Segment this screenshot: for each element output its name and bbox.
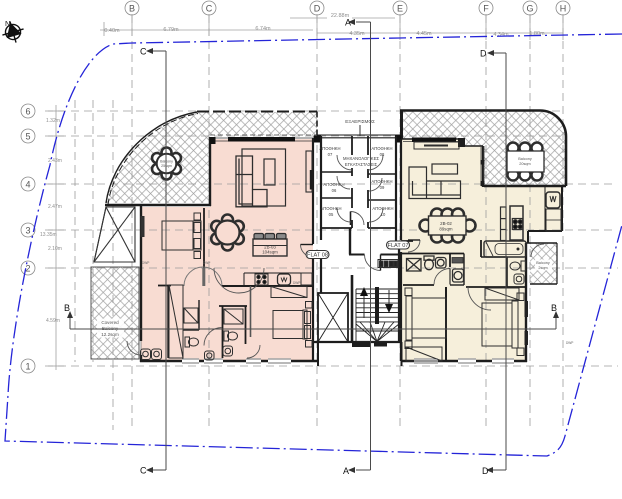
- svg-text:4.59m: 4.59m: [46, 318, 60, 324]
- svg-text:F: F: [483, 4, 489, 14]
- svg-text:H: H: [560, 4, 567, 14]
- svg-text:13.35m: 13.35m: [40, 232, 57, 238]
- svg-text:A: A: [343, 466, 349, 476]
- svg-text:FLAT 08: FLAT 08: [307, 253, 328, 259]
- svg-text:4.35m: 4.35m: [349, 31, 365, 37]
- svg-text:2.10m: 2.10m: [48, 246, 62, 252]
- svg-text:E: E: [397, 4, 403, 14]
- svg-text:ΑΠΟΘΗΚΗ: ΑΠΟΘΗΚΗ: [323, 182, 344, 187]
- svg-text:DWP: DWP: [566, 341, 573, 345]
- svg-text:4.45m: 4.45m: [416, 31, 432, 37]
- svg-text:B: B: [551, 303, 557, 313]
- svg-text:2.47m: 2.47m: [48, 204, 62, 210]
- svg-text:6.79m: 6.79m: [163, 27, 179, 33]
- svg-text:Balcony: Balcony: [518, 157, 532, 161]
- svg-text:06: 06: [332, 188, 337, 193]
- svg-text:C: C: [206, 4, 213, 14]
- svg-text:ΑΠΟΘΗΚΗ: ΑΠΟΘΗΚΗ: [371, 179, 392, 184]
- svg-text:B: B: [64, 303, 70, 313]
- svg-text:6.74m: 6.74m: [255, 26, 271, 32]
- svg-text:ΑΠΟΘΗΚΗ: ΑΠΟΘΗΚΗ: [320, 206, 341, 211]
- svg-text:07: 07: [328, 152, 333, 157]
- svg-text:DWP: DWP: [293, 281, 300, 285]
- svg-text:104sqm: 104sqm: [262, 250, 278, 255]
- svg-text:Balcony: Balcony: [160, 160, 173, 164]
- svg-text:D: D: [482, 466, 489, 476]
- svg-text:05: 05: [329, 212, 334, 217]
- svg-text:ΑΠΟΘΗΚΗ: ΑΠΟΘΗΚΗ: [371, 146, 392, 151]
- svg-text:0.40m: 0.40m: [104, 28, 120, 34]
- svg-text:12.2sqm: 12.2sqm: [101, 332, 119, 337]
- svg-text:N: N: [5, 19, 10, 28]
- svg-text:4: 4: [25, 180, 30, 190]
- svg-text:G: G: [526, 4, 533, 14]
- svg-text:5: 5: [25, 132, 30, 142]
- svg-text:A: A: [345, 18, 351, 28]
- svg-text:09: 09: [380, 185, 385, 190]
- svg-text:D: D: [480, 49, 487, 59]
- svg-text:4.34m: 4.34m: [493, 32, 509, 38]
- svg-text:89sqm: 89sqm: [439, 227, 453, 232]
- svg-text:ΑΠΟΘΗΚΗ: ΑΠΟΘΗΚΗ: [372, 206, 393, 211]
- svg-text:FLAT 07: FLAT 07: [388, 243, 409, 249]
- svg-text:Balcony: Balcony: [536, 261, 550, 265]
- svg-text:DWP: DWP: [142, 261, 149, 265]
- svg-text:D: D: [314, 4, 321, 14]
- svg-text:1: 1: [25, 362, 30, 372]
- svg-text:3: 3: [25, 226, 30, 236]
- svg-text:ΑΠΟΘΗΚΗ: ΑΠΟΘΗΚΗ: [319, 146, 340, 151]
- svg-text:C: C: [140, 47, 147, 57]
- svg-text:2sqm: 2sqm: [538, 266, 547, 270]
- svg-text:10: 10: [381, 212, 386, 217]
- svg-text:1.32m: 1.32m: [46, 118, 60, 124]
- svg-text:B: B: [129, 4, 135, 14]
- svg-text:ΜΗΧΑΝΟΛΟΓΙΚΕΣ: ΜΗΧΑΝΟΛΟΓΙΚΕΣ: [343, 156, 379, 161]
- svg-text:DWP: DWP: [203, 261, 210, 265]
- svg-text:Covered: Covered: [101, 320, 119, 325]
- svg-text:C: C: [140, 466, 147, 476]
- svg-text:08: 08: [380, 152, 385, 157]
- svg-text:6: 6: [25, 107, 30, 117]
- svg-text:ΕΓΚΑΤΑΣΤΑΣΕΙΣ: ΕΓΚΑΤΑΣΤΑΣΕΙΣ: [345, 162, 378, 167]
- svg-text:2B-02: 2B-02: [440, 221, 452, 226]
- svg-text:20sqm: 20sqm: [519, 162, 530, 166]
